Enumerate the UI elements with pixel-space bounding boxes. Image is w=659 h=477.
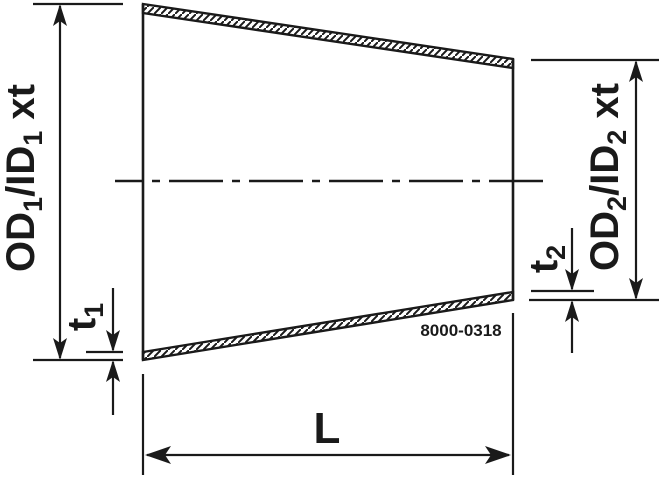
length-label: L [314,404,341,453]
t2-label: t2 [522,245,571,273]
drawing-number: 8000-0318 [420,321,501,340]
t1-label: t1 [60,303,109,331]
reducer-top-wall [143,4,513,68]
technical-drawing-page: OD1/ID1 xt t1 OD2/ID2 xt t2 L 8000-0318 [0,0,659,477]
reducer-drawing: OD1/ID1 xt t1 OD2/ID2 xt t2 L 8000-0318 [0,0,659,477]
od1-label: OD1/ID1 xt [0,84,48,272]
od2-label: OD2/ID2 xt [583,83,632,271]
